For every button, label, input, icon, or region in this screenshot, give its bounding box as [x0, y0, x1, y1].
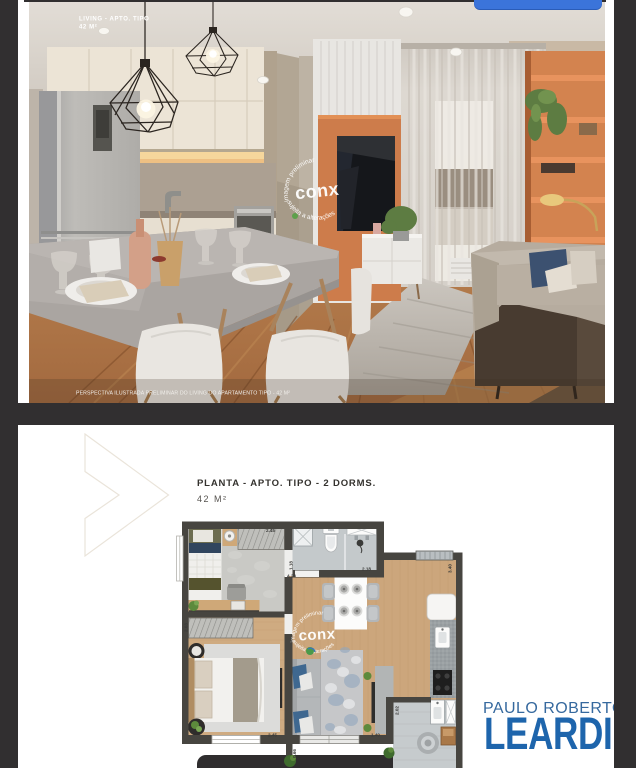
svg-text:2.03: 2.03: [184, 623, 189, 632]
svg-text:2.45: 2.45: [266, 528, 275, 533]
svg-text:3.40: 3.40: [448, 564, 453, 573]
svg-text:2.45: 2.45: [268, 733, 277, 738]
svg-text:2.02: 2.02: [395, 706, 400, 715]
svg-text:conx: conx: [298, 626, 336, 645]
svg-text:42 M²: 42 M²: [79, 24, 97, 31]
svg-text:0.66: 0.66: [292, 749, 297, 758]
svg-text:1.40: 1.40: [371, 733, 380, 738]
svg-text:4.23: 4.23: [287, 574, 296, 579]
svg-text:PERSPECTIVA ILUSTRADA PRELIMIN: PERSPECTIVA ILUSTRADA PRELIMINAR DO LIVI…: [76, 391, 290, 397]
svg-text:LIVING - APTO. TIPO: LIVING - APTO. TIPO: [79, 17, 149, 23]
svg-text:1.18: 1.18: [289, 561, 294, 570]
svg-text:2.18: 2.18: [362, 567, 371, 572]
